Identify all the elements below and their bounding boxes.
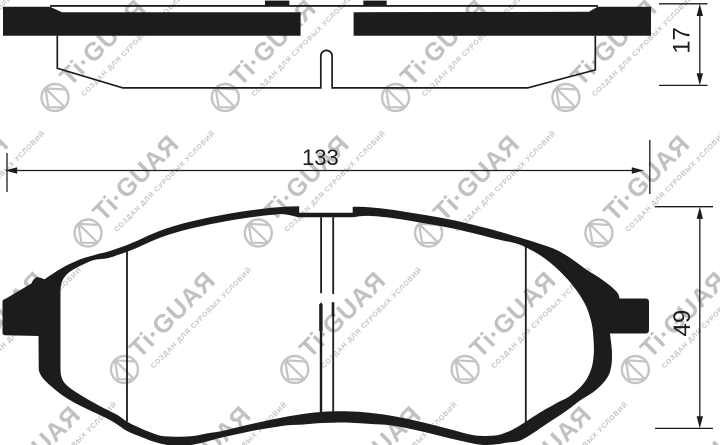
- svg-text:49: 49: [669, 310, 696, 337]
- svg-text:133: 133: [302, 145, 339, 170]
- svg-text:17: 17: [669, 27, 696, 54]
